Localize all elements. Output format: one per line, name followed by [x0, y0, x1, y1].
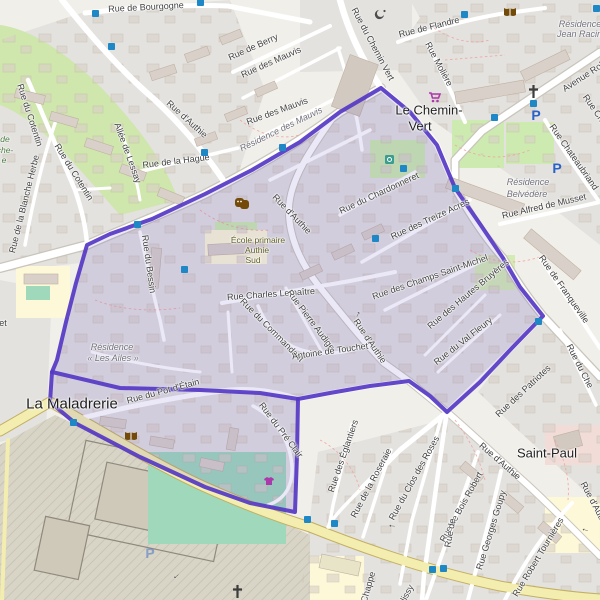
map-canvas [0, 0, 600, 600]
sports-pitch-small [26, 286, 50, 300]
map-viewport[interactable]: Rue de BourgogneRue de BerryRue des Mauv… [0, 0, 600, 600]
